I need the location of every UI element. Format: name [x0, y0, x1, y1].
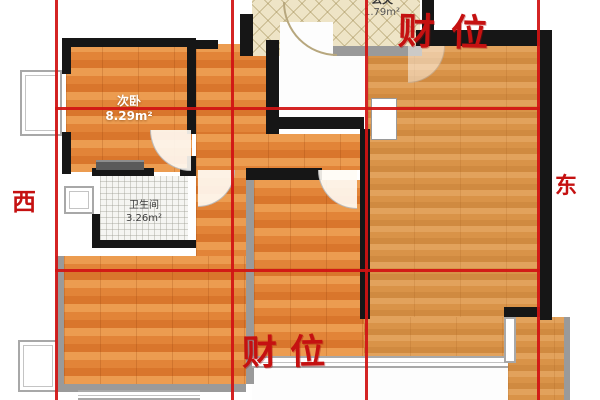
wall — [246, 168, 322, 180]
grid-line-vertical-2 — [231, 0, 234, 400]
wall — [196, 40, 218, 49]
bathroom-name: 卫生间 — [100, 200, 188, 213]
kitchen-floor — [196, 44, 272, 134]
grid-line-vertical-4 — [537, 0, 540, 400]
grid-line-horizontal-2 — [55, 269, 540, 272]
wall — [504, 307, 540, 317]
grid-line-vertical-1 — [55, 0, 58, 400]
wall — [62, 132, 71, 174]
wall — [92, 214, 100, 244]
wall — [272, 117, 364, 129]
hallway-floor-upper — [196, 134, 364, 170]
bathroom-label: 卫生间 3.26m² — [100, 200, 188, 225]
wealth-label-top: 财位 — [397, 1, 504, 58]
master-bottom-window — [78, 390, 200, 400]
bathroom-window — [64, 186, 94, 214]
living-room-floor — [368, 46, 540, 317]
bedroom-furniture — [96, 160, 144, 170]
balcony-right-wall — [564, 317, 570, 400]
entry-cabinet — [371, 98, 397, 140]
second-bedroom-area: 8.29m² — [66, 109, 192, 124]
wealth-label-bottom: 财位 — [242, 323, 339, 376]
wall — [62, 38, 196, 47]
grid-line-vertical-3 — [365, 0, 368, 400]
bay-window-master — [18, 340, 58, 392]
master-bedroom-floor — [64, 256, 246, 390]
compass-west-label: 西 — [12, 182, 36, 217]
wall — [62, 38, 71, 74]
grid-line-horizontal-1 — [55, 107, 540, 110]
bathroom-area: 3.26m² — [100, 213, 188, 226]
wall — [540, 30, 552, 320]
wall — [240, 14, 253, 56]
living-room-floor-south — [364, 317, 504, 356]
living-balcony-frame — [504, 317, 516, 363]
wall — [92, 240, 196, 248]
floorplan: 次卧 8.29m² 卫生间 3.26m² 玄关 1.79m² 财位 财位 西 东 — [0, 0, 600, 400]
compass-east-label: 东 — [555, 168, 577, 200]
